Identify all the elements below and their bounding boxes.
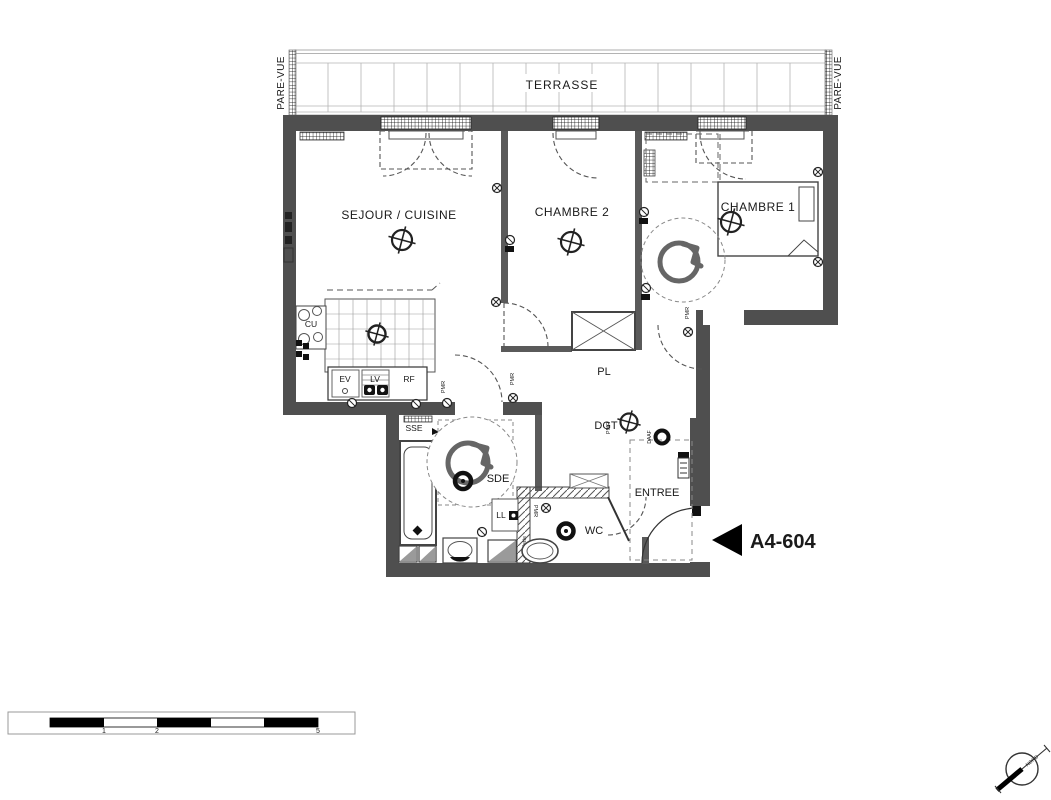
room-entree: ENTREE DAAF: [630, 430, 692, 560]
radiator-sejour: [300, 132, 344, 140]
terrace-label: TERRASSE: [526, 78, 599, 92]
chambre1-window-swing: [700, 133, 746, 179]
wall-right-upper: [823, 115, 838, 325]
scale-tick-2: 2: [155, 728, 159, 735]
unit-arrow-icon: [712, 524, 742, 556]
entrance-door-hinge: [692, 506, 701, 516]
switch-icon: [684, 328, 693, 337]
sejour-cuisine-label: SEJOUR / CUISINE: [341, 208, 456, 222]
washer-label: LL: [496, 510, 506, 520]
pmr-circle-chambre1: [641, 218, 725, 302]
sde-label: SDE: [487, 473, 510, 485]
washbasin: [443, 538, 477, 563]
wc-door-swing: [608, 497, 646, 535]
wheelchair-icon: [660, 243, 701, 281]
opening-sde-door: [455, 402, 503, 415]
switch-icon: [542, 504, 551, 513]
pare-vue-label-left: PARE-VUE: [276, 56, 287, 110]
pmr-label: PMR: [606, 422, 612, 434]
closet-chambre2: [572, 312, 635, 350]
floor-drain-wc: [559, 524, 574, 539]
socket-icon: [348, 399, 357, 408]
closet-label: PL: [597, 366, 610, 378]
chambre1-door-swing: [658, 325, 702, 369]
room-chambre2: CHAMBRE 2: [535, 205, 635, 350]
wall-sde-hall: [535, 415, 542, 491]
smoke-detector: DAAF: [647, 430, 669, 443]
towel-dryer-label: SSE: [405, 423, 422, 433]
opening-chambre1-door: [703, 310, 744, 325]
pmr-circle-sde: [427, 417, 517, 507]
fridge-label: RF: [403, 374, 414, 384]
ceiling-light-dgt-icon: [614, 407, 643, 436]
entrance-door-swing: [642, 508, 697, 563]
switch-icon: [492, 298, 501, 307]
switch-icon: [493, 184, 502, 193]
socket-icon: [412, 400, 421, 409]
dishwasher-label: LV: [370, 374, 380, 384]
wall-bottom: [386, 563, 710, 577]
sde-door-swing: [455, 355, 502, 402]
hob-label: CU: [305, 319, 317, 329]
chambre2-label: CHAMBRE 2: [535, 205, 610, 219]
toilet: [522, 539, 558, 563]
window-chambre1: [698, 117, 746, 129]
window-chambre1-sill: [700, 131, 744, 139]
pare-vue-label-right: PARE-VUE: [833, 56, 844, 110]
entree-label: ENTREE: [635, 487, 680, 499]
chambre2-door-swing: [504, 303, 548, 347]
pmr-label: PMR: [441, 381, 447, 393]
north-arrow: NORD: [995, 745, 1050, 793]
switch-icon: [814, 258, 823, 267]
floor-plan-page: TERRASSE PARE-VUE PARE-VUE: [0, 0, 1051, 800]
room-sejour-cuisine: SEJOUR / CUISINE: [284, 132, 457, 400]
socket-icon: [443, 399, 452, 408]
wc-shelf: [570, 474, 608, 488]
wall-chambre2-right: [635, 131, 642, 350]
wall-left: [283, 115, 296, 413]
scale-tick-5: 5: [316, 728, 320, 735]
sink-label: EV: [339, 374, 351, 384]
wc-label: WC: [585, 525, 603, 537]
pmr-label: PMR: [532, 505, 538, 517]
wall-sejour-chambre2: [501, 131, 508, 303]
smoke-detector-label: DAAF: [647, 430, 653, 443]
pmr-label: PMR: [685, 307, 691, 319]
wall-sde-left: [386, 402, 399, 577]
wardrobe-dashed: [646, 134, 720, 182]
switch-icon: [509, 394, 518, 403]
socket-icon: [478, 528, 487, 537]
window-chambre2-sill: [556, 131, 596, 139]
scale-tick-1: 1: [102, 728, 106, 735]
wall-wc-top-hatched: [517, 487, 609, 498]
ceiling-light-chambre2-icon: [554, 225, 588, 259]
towel-dryer: [404, 416, 432, 422]
radiator-chambre1: [645, 132, 687, 140]
wall-hall-right: [696, 310, 710, 420]
kitchen-zone: CU EV LV RF: [296, 283, 440, 400]
room-chambre1: CHAMBRE 1: [641, 132, 818, 302]
window-chambre2: [553, 117, 599, 129]
unit-callout: A4-604: [712, 524, 816, 556]
wall-chambre2-bottom: [501, 346, 572, 352]
pmr-label: PMR: [510, 373, 516, 385]
socket-icon: [641, 284, 651, 301]
scale-bar: 1 2 5: [8, 712, 355, 735]
wall-sejour-bottom: [283, 402, 400, 415]
washing-machine: LL: [492, 499, 518, 531]
unit-label: A4-604: [750, 531, 816, 553]
room-sde: SSE SDE LL: [399, 416, 528, 563]
switch-icon: [814, 168, 823, 177]
intercom-panel-icon: [678, 452, 689, 478]
floor-plan-svg: TERRASSE PARE-VUE PARE-VUE: [0, 0, 1051, 800]
terrace: TERRASSE PARE-VUE PARE-VUE: [276, 50, 844, 115]
pare-vue-screen-left: [289, 50, 296, 115]
chambre2-window-swing: [553, 133, 598, 178]
pare-vue-screen-right: [825, 50, 832, 115]
hallway: PL DGT: [594, 366, 643, 437]
window-sejour: [381, 117, 471, 129]
kitchen-counter: EV LV RF: [328, 367, 427, 400]
ceiling-light-sejour-icon: [385, 223, 419, 257]
